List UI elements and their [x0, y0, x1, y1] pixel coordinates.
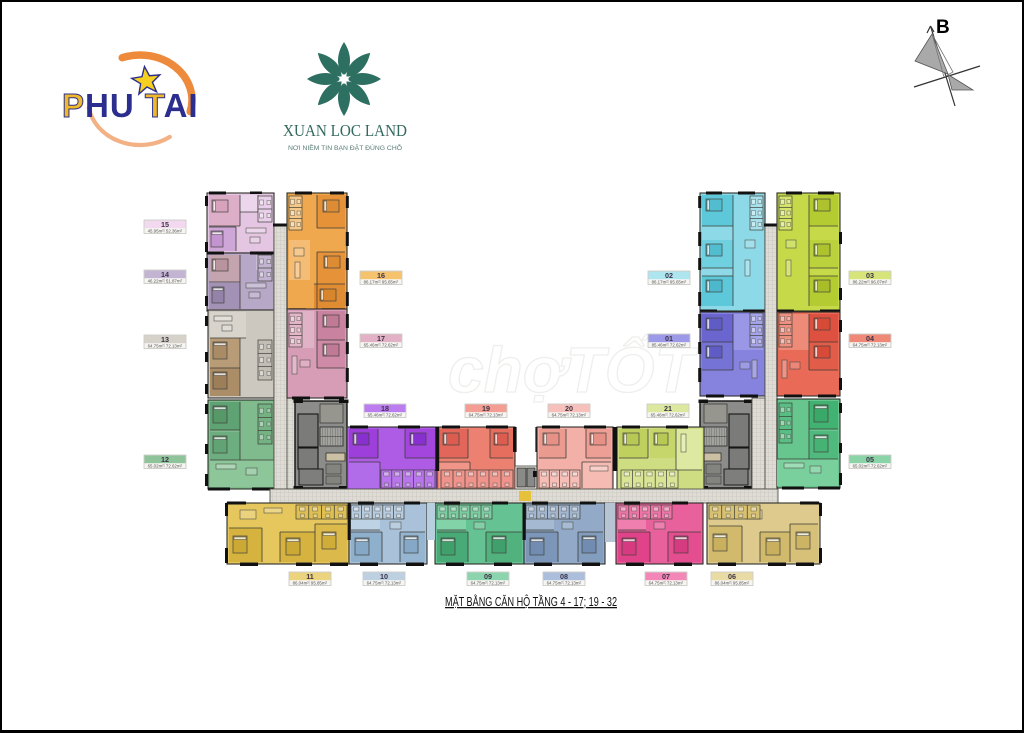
svg-text:06: 06: [728, 572, 736, 581]
svg-text:11: 11: [306, 572, 314, 581]
svg-text:13: 13: [161, 335, 169, 344]
svg-text:12: 12: [161, 455, 169, 464]
svg-text:86.04m² 95.85m²: 86.04m² 95.85m²: [715, 581, 750, 586]
svg-text:B: B: [936, 17, 950, 38]
svg-text:PHU TAI: PHU TAI: [62, 87, 199, 124]
svg-text:64.75m² 72.13m²: 64.75m² 72.13m²: [367, 581, 402, 586]
svg-text:05: 05: [866, 455, 874, 464]
svg-text:15: 15: [161, 220, 169, 229]
svg-text:86.17m² 95.65m²: 86.17m² 95.65m²: [364, 280, 399, 285]
svg-text:19: 19: [482, 404, 490, 413]
svg-text:04: 04: [866, 334, 874, 343]
svg-text:64.75m² 72.13m²: 64.75m² 72.13m²: [469, 413, 504, 418]
svg-text:46.22m² 51.87m²: 46.22m² 51.87m²: [148, 279, 183, 284]
svg-text:20: 20: [565, 404, 573, 413]
svg-text:14: 14: [161, 270, 169, 279]
svg-text:86.17m² 95.65m²: 86.17m² 95.65m²: [652, 280, 687, 285]
svg-text:64.75m² 72.13m²: 64.75m² 72.13m²: [547, 581, 582, 586]
svg-text:02: 02: [665, 271, 673, 280]
svg-text:86.04m² 95.85m²: 86.04m² 95.85m²: [293, 581, 328, 586]
svg-text:08: 08: [560, 572, 568, 581]
svg-text:16: 16: [377, 271, 385, 280]
svg-text:85.46m² 72.62m²: 85.46m² 72.62m²: [652, 343, 687, 348]
svg-text:07: 07: [662, 572, 670, 581]
svg-text:18: 18: [381, 404, 389, 413]
svg-text:65.46m² 72.62m²: 65.46m² 72.62m²: [368, 413, 403, 418]
svg-text:01: 01: [665, 334, 673, 343]
svg-text:17: 17: [377, 334, 385, 343]
svg-text:03: 03: [866, 271, 874, 280]
svg-text:86.22m² 96.07m²: 86.22m² 96.07m²: [853, 280, 888, 285]
svg-text:64.75m² 72.13m²: 64.75m² 72.13m²: [649, 581, 684, 586]
svg-text:10: 10: [380, 572, 388, 581]
svg-text:65.46m² 72.62m²: 65.46m² 72.62m²: [651, 413, 686, 418]
svg-text:09: 09: [484, 572, 492, 581]
svg-text:45.95m² 52.36m²: 45.95m² 52.36m²: [148, 229, 183, 234]
svg-text:65.02m² 72.62m²: 65.02m² 72.62m²: [148, 464, 183, 469]
svg-text:65.46m² 72.62m²: 65.46m² 72.62m²: [364, 343, 399, 348]
svg-text:21: 21: [664, 404, 672, 413]
svg-text:64.75m² 72.13m²: 64.75m² 72.13m²: [148, 344, 183, 349]
svg-text:64.75m² 72.13m²: 64.75m² 72.13m²: [853, 343, 888, 348]
svg-text:NƠI NIỀM TIN BẠN ĐẶT ĐÚNG CHỖ: NƠI NIỀM TIN BẠN ĐẶT ĐÚNG CHỖ: [288, 142, 402, 152]
svg-text:MẶT BẰNG CĂN HỘ TẦNG 4 - 17; 1: MẶT BẰNG CĂN HỘ TẦNG 4 - 17; 19 - 32: [445, 594, 617, 609]
svg-text:65.02m² 72.62m²: 65.02m² 72.62m²: [853, 464, 888, 469]
svg-text:64.75m² 72.13m²: 64.75m² 72.13m²: [552, 413, 587, 418]
svg-text:64.75m² 72.13m²: 64.75m² 72.13m²: [471, 581, 506, 586]
svg-text:XUAN LOC LAND: XUAN LOC LAND: [283, 121, 407, 140]
